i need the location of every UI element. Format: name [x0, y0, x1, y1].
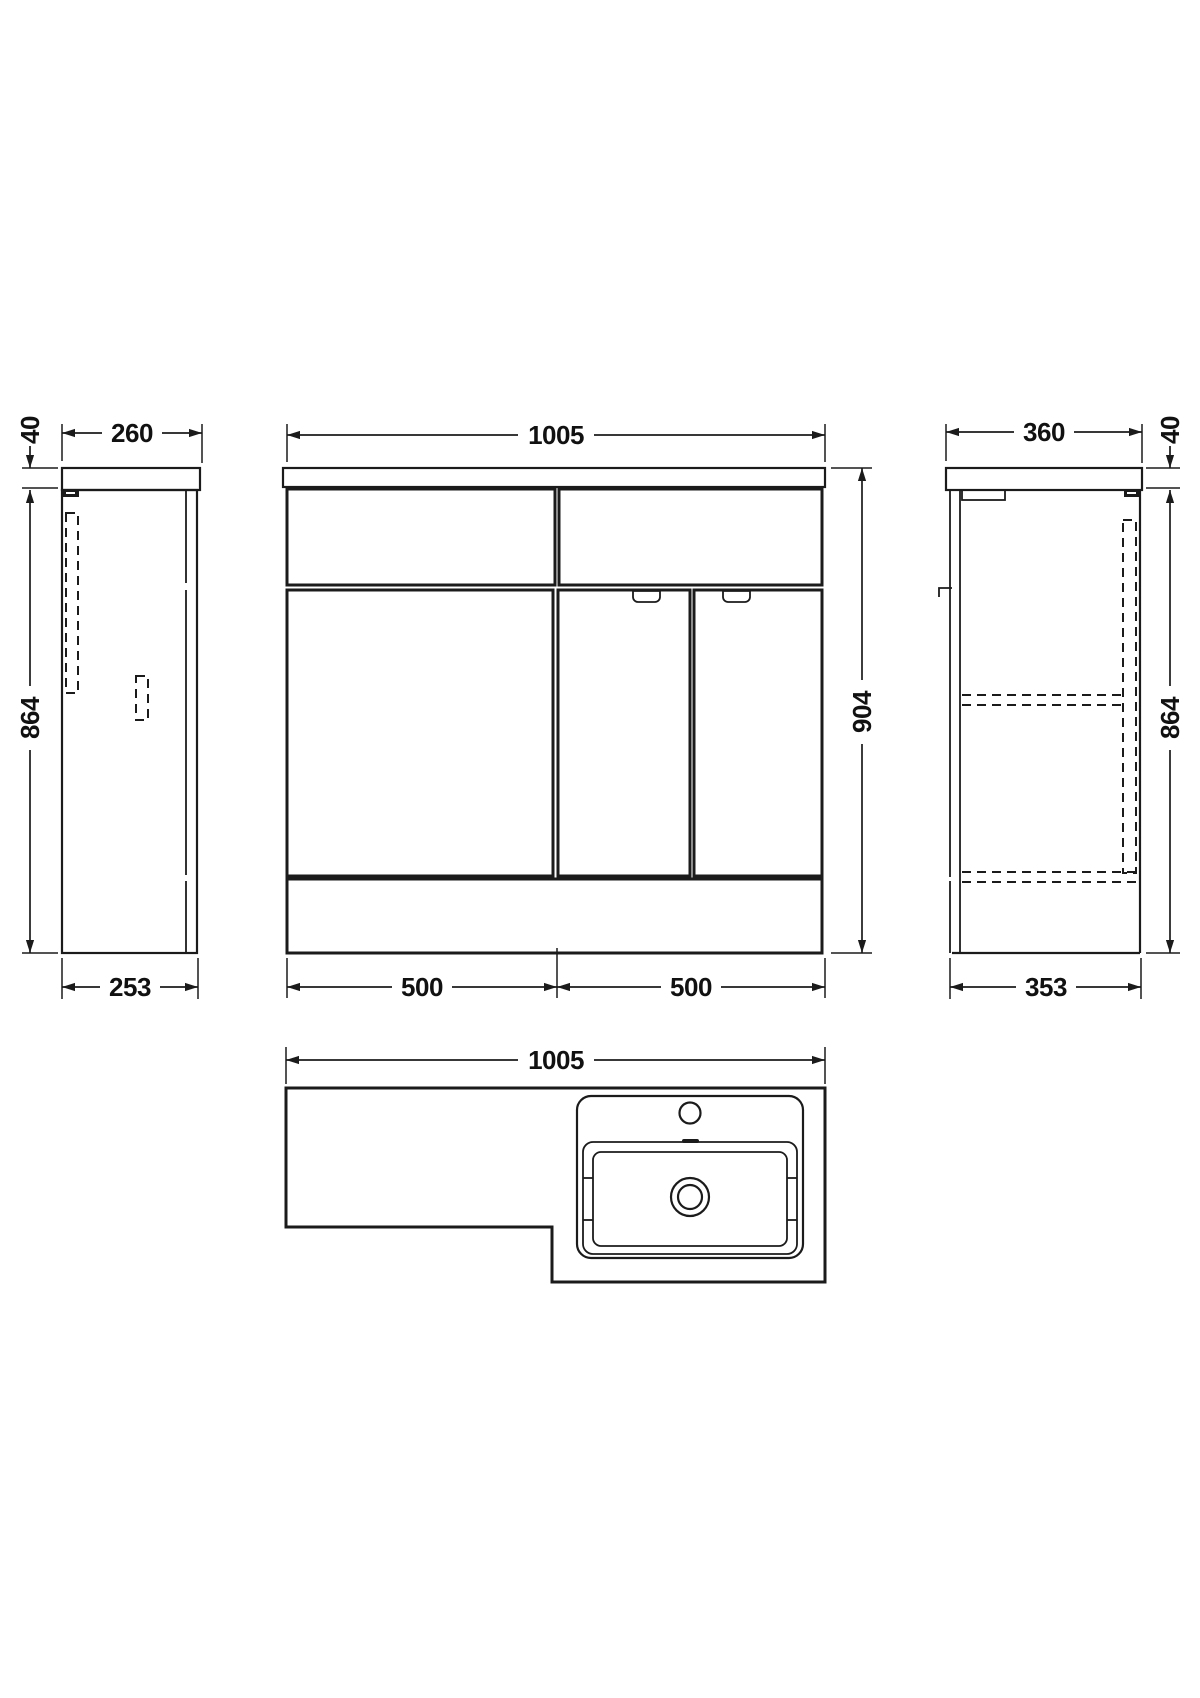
- countertop-side: [62, 468, 200, 490]
- door-left-handle: [633, 591, 660, 602]
- dim-label-front-height: 904: [847, 690, 877, 733]
- drawer-runner: [962, 490, 1005, 500]
- dim-left-base-depth: 253: [62, 958, 198, 1002]
- dim-label-plan-width: 1005: [528, 1045, 584, 1075]
- dim-front-height: 904: [831, 468, 877, 953]
- dim-front-sections: 500 500: [287, 948, 825, 1002]
- dim-right-base-depth: 353: [950, 958, 1141, 1002]
- dim-label-front-left-width: 500: [401, 972, 443, 1002]
- dim-label-right-base-depth: 353: [1025, 972, 1067, 1002]
- hidden-shelf: [962, 695, 1123, 705]
- drawing-svg: 260 40 864 253: [0, 0, 1200, 1698]
- waste-drain-outer: [671, 1178, 709, 1216]
- hidden-bottom-board: [962, 872, 1140, 882]
- dim-left-top-thickness: 40: [15, 416, 58, 488]
- basin-rim: [583, 1142, 797, 1254]
- dim-left-top-depth: 260: [62, 418, 202, 463]
- hidden-frame-strip: [66, 513, 78, 693]
- drawer-front: [559, 489, 822, 585]
- technical-drawing-canvas: 260 40 864 253: [0, 0, 1200, 1698]
- front-view: 1005 904 500 500: [283, 420, 877, 1002]
- dim-right-height: 864: [1146, 490, 1185, 953]
- plinth-front: [287, 879, 822, 953]
- dim-label-left-base-depth: 253: [109, 972, 151, 1002]
- countertop-side-right: [946, 468, 1142, 490]
- hidden-rear-strip: [1123, 520, 1136, 873]
- door-right: [694, 590, 822, 876]
- dim-front-width: 1005: [287, 420, 825, 462]
- waste-drain-inner: [678, 1185, 702, 1209]
- dim-label-front-width: 1005: [528, 420, 584, 450]
- dim-label-left-top-thickness: 40: [15, 416, 45, 444]
- dim-label-right-height: 864: [1155, 696, 1185, 739]
- countertop-front: [283, 468, 825, 487]
- plan-view: 1005: [286, 1045, 825, 1282]
- dim-label-front-right-width: 500: [670, 972, 712, 1002]
- dim-right-top-depth: 360: [946, 417, 1142, 463]
- dim-label-right-top-thickness: 40: [1155, 416, 1185, 444]
- dim-label-left-top-depth: 260: [111, 418, 153, 448]
- tap-hole: [680, 1103, 701, 1124]
- left-end-view: 260 40 864 253: [15, 416, 202, 1002]
- right-end-view: 360 40 864 353: [939, 416, 1185, 1002]
- dim-left-height: 864: [15, 490, 58, 953]
- dim-plan-width: 1005: [286, 1045, 825, 1084]
- overflow-slot: [682, 1139, 699, 1143]
- cabinet-side-panel: [62, 490, 197, 953]
- door-right-handle: [723, 591, 750, 602]
- front-door-edge: [950, 490, 960, 953]
- basin-bowl: [593, 1152, 787, 1246]
- door-left: [558, 590, 690, 876]
- hidden-handle-block: [136, 676, 148, 720]
- wc-unit-panel: [287, 590, 553, 876]
- dim-right-top-thickness: 40: [1146, 416, 1185, 488]
- dim-label-right-top-depth: 360: [1023, 417, 1065, 447]
- dim-label-left-height: 864: [15, 696, 45, 739]
- upper-panel-left: [287, 489, 555, 585]
- worktop-outline: [286, 1088, 825, 1282]
